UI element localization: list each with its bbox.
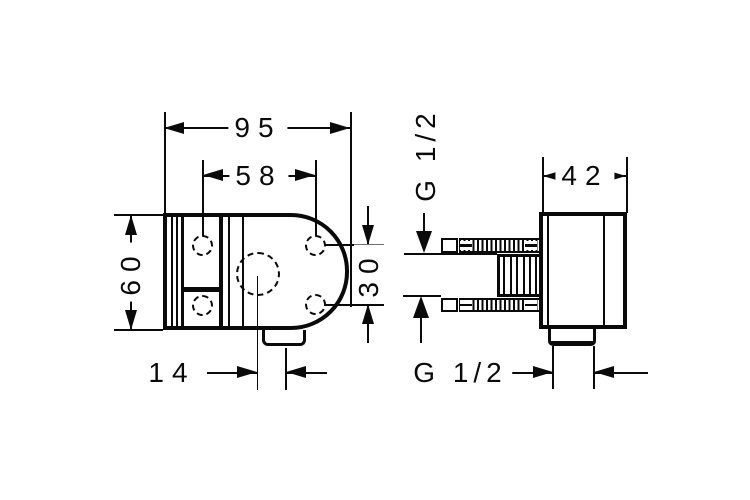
g12-top-arrow-down	[416, 231, 432, 253]
dim-42-label: 42	[555, 161, 614, 191]
mount-hole-bottom-left	[192, 295, 213, 316]
dim-30-arrow-bottom	[362, 304, 374, 324]
ribbed-block-line	[516, 257, 518, 294]
g12-top-arrow-shaft	[423, 213, 425, 233]
ribbed-block-line	[510, 257, 512, 294]
extension-line-60-bottom	[114, 329, 163, 331]
mount-panel-right-line	[219, 217, 224, 326]
technical-drawing-canvas: 95 58 60 30 14	[0, 0, 750, 500]
front-view-face-line	[171, 217, 173, 326]
g12-extension-line-upper	[404, 253, 497, 255]
ribbed-block-line	[529, 257, 531, 294]
mount-hole-top-right	[305, 235, 326, 256]
extension-line-60-top	[114, 214, 163, 216]
dim-30-arrow-top	[362, 225, 374, 245]
extension-line-42-left	[542, 157, 544, 213]
side-view-face-line	[603, 216, 605, 325]
dim-14-arrow-right	[286, 366, 306, 378]
dim-58-arrow-right	[295, 169, 315, 181]
extension-line-42-right	[626, 157, 628, 213]
thread-label-bottom: G 1/2	[407, 358, 512, 388]
ribbed-block-line	[535, 257, 537, 294]
dim-58-label: 58	[229, 161, 288, 191]
thread-core-dash	[525, 244, 537, 247]
dim-60-arrow-top	[125, 215, 137, 235]
dim-14-arrow-left	[237, 366, 257, 378]
thread-label-top: G 1/2	[411, 102, 441, 207]
dim-95-arrow-left	[164, 122, 184, 134]
dim-95-label: 95	[228, 113, 287, 143]
dim-60-arrow-bottom	[125, 310, 137, 330]
g12-bottom-arrow-shaft	[420, 315, 422, 343]
ribbed-block-line	[523, 257, 525, 294]
front-view-face-line	[228, 217, 230, 326]
thread-stud-top-tip	[441, 238, 458, 253]
dim-14-label: 14	[142, 358, 201, 388]
thread-stud-bottom-tip	[441, 298, 458, 313]
mount-panel-left-line	[181, 217, 184, 326]
dim-60-label: 60	[116, 242, 146, 301]
extension-line-30-bottom	[324, 304, 384, 306]
g12-outlet-arrow-right	[594, 366, 614, 378]
ribbed-block-line	[503, 257, 505, 294]
thread-core-dash	[460, 304, 472, 307]
mount-hole-bottom-right	[305, 294, 326, 315]
thread-core-dash	[525, 304, 537, 307]
mount-panel-divider	[181, 287, 223, 292]
front-view-outlet-tab	[262, 330, 306, 346]
front-view-face-line	[176, 217, 178, 326]
dim-58-arrow-left	[203, 169, 223, 181]
mount-hole-top-left	[192, 235, 213, 256]
thread-core-dash	[460, 244, 472, 247]
g12-outlet-arrow-left	[533, 366, 553, 378]
dim-30-label: 30	[354, 244, 384, 303]
side-view-outlet-flange	[548, 329, 596, 346]
extension-line-95-right	[350, 112, 352, 307]
dim-95-arrow-right	[330, 122, 350, 134]
side-view-body-outline	[539, 212, 627, 329]
side-view-escutcheon-line	[547, 216, 549, 325]
